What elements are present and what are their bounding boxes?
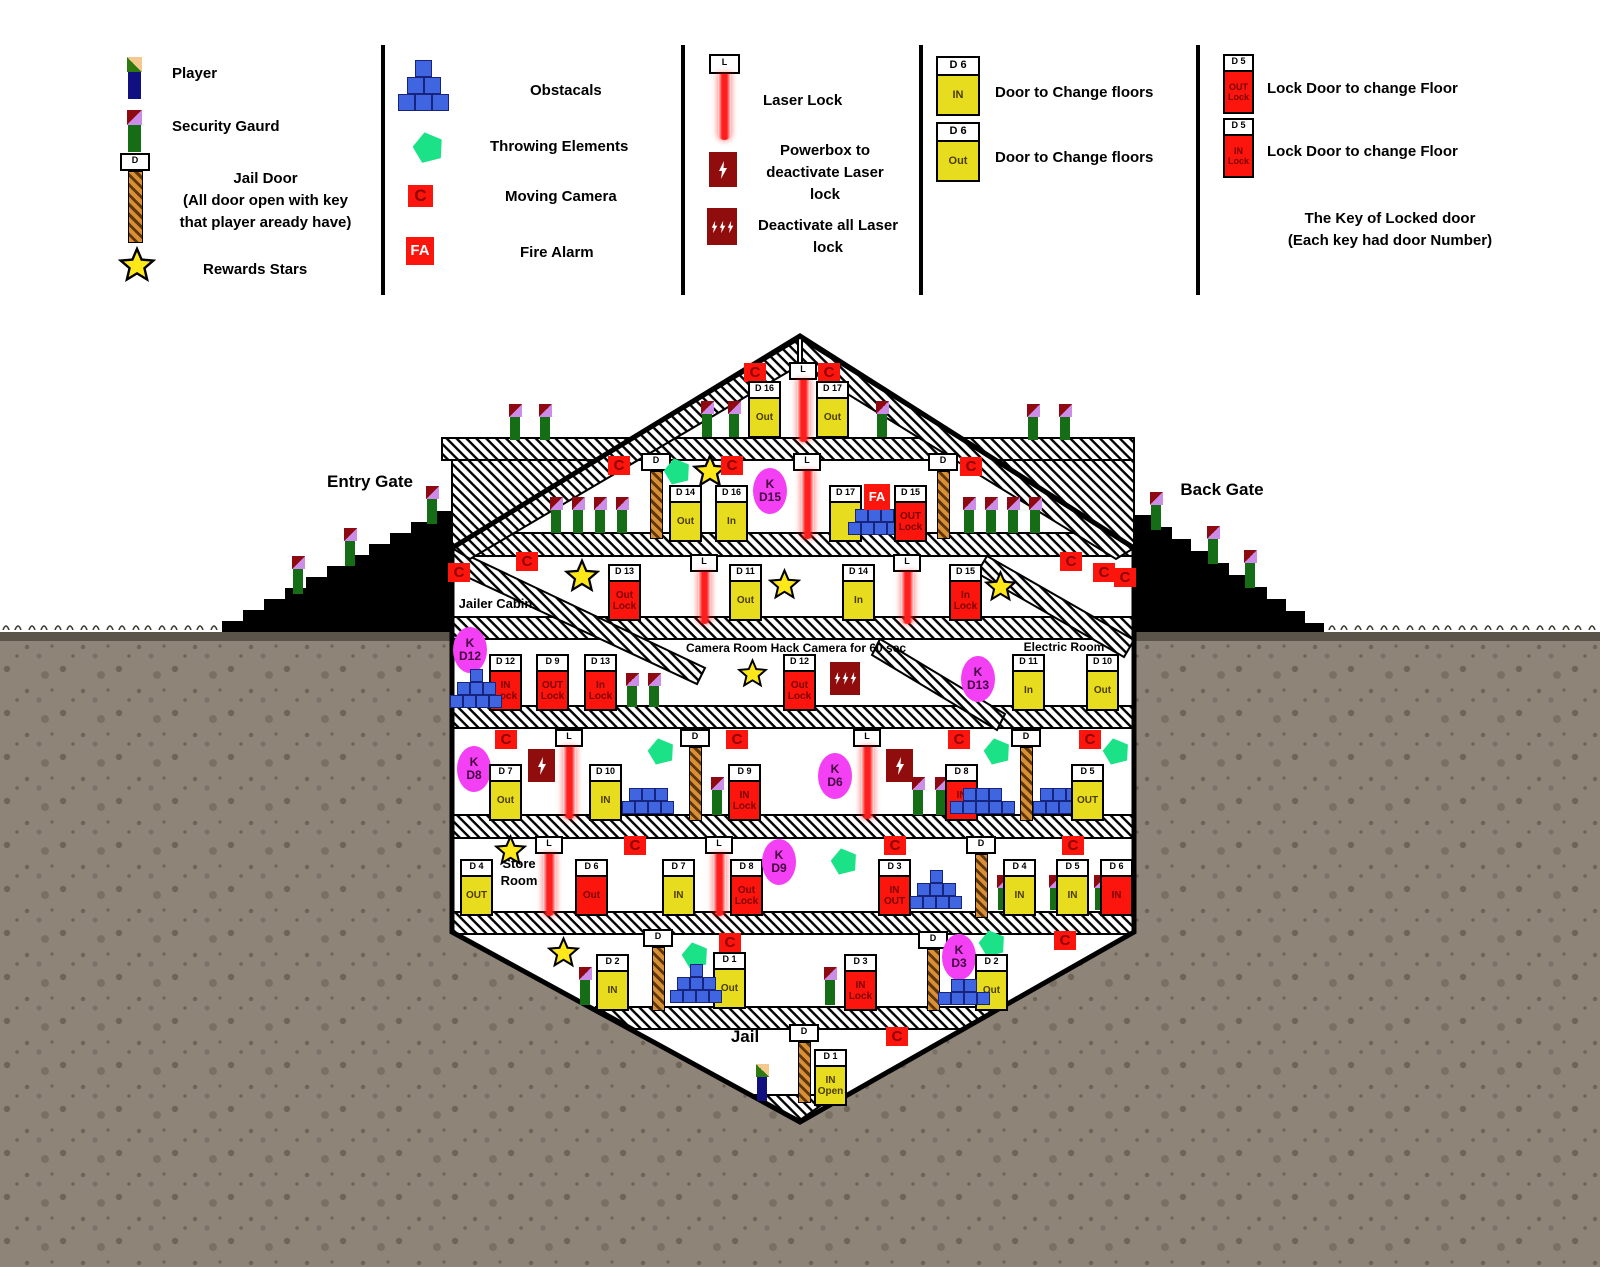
- camera-icon: C: [1093, 563, 1115, 582]
- reward-star-icon: [984, 570, 1017, 603]
- door-d4: D 4OUT: [460, 859, 493, 916]
- door-d16: D 16Out: [748, 381, 781, 438]
- security-guard: [578, 967, 592, 1005]
- lock-door-out-icon: D 5OUT Lock: [1223, 54, 1254, 114]
- security-guard: [823, 967, 837, 1005]
- door-d6: D 6IN: [1100, 859, 1133, 916]
- camera-icon: C: [516, 552, 538, 571]
- obstacle-blocks: [950, 788, 1015, 814]
- door-d3: D 3IN OUT: [878, 859, 911, 916]
- security-guard: [593, 497, 607, 533]
- camera-icon: C: [448, 563, 470, 582]
- security-guard: [962, 497, 976, 533]
- legend-fire-alarm-label: Fire Alarm: [520, 242, 594, 264]
- jail-door: D: [641, 453, 671, 539]
- camera-icon: C: [495, 730, 517, 749]
- jailer-cabin-label: Jailer Cabin: [448, 596, 543, 611]
- reward-star-icon: [768, 568, 801, 601]
- security-guard: [1026, 404, 1040, 440]
- door-d10: D 10Out: [1086, 654, 1119, 711]
- door-d10: D 10IN: [589, 764, 622, 821]
- laser-lock: L: [555, 729, 583, 819]
- security-guard: [911, 777, 925, 815]
- laser-lock: L: [690, 554, 718, 624]
- obstacle-blocks: [670, 964, 722, 1003]
- door-d2: D 2IN: [596, 954, 629, 1011]
- reward-star-icon: [737, 658, 768, 689]
- legend-divider: [1196, 45, 1200, 295]
- camera-icon: C: [1060, 552, 1082, 571]
- key-d12: KD12: [453, 627, 487, 673]
- electric-room-label: Electric Room: [1008, 640, 1120, 654]
- obstacle-blocks: [450, 669, 502, 708]
- moving-camera-icon: C: [408, 185, 433, 207]
- camera-icon: C: [726, 730, 748, 749]
- security-guard: [1058, 404, 1072, 440]
- key-d8: KD8: [457, 746, 491, 792]
- back-staircase: [1134, 515, 1324, 632]
- door-d7: D 7Out: [489, 764, 522, 821]
- legend-door-change-label: Door to Change floors: [995, 82, 1153, 104]
- door-change-floor-in-icon: D 6IN: [936, 56, 980, 116]
- legend-stars-label: Rewards Stars: [203, 259, 307, 281]
- fire-alarm-icon: FA: [864, 484, 890, 510]
- door-d9: D 9IN Lock: [728, 764, 761, 821]
- key-d13: KD13: [961, 656, 995, 702]
- key-d15: KD15: [753, 468, 787, 514]
- obstacle-blocks-icon: [398, 60, 449, 111]
- security-guard: [875, 401, 889, 437]
- fire-alarm-icon: FA: [406, 237, 434, 265]
- camera-icon: C: [818, 363, 840, 382]
- door-d16: D 16In: [715, 485, 748, 542]
- laser-lock: L: [705, 836, 733, 916]
- door-d12: D 12Out Lock: [783, 654, 816, 711]
- reward-star-icon: [494, 834, 527, 867]
- security-guard: [425, 486, 439, 524]
- camera-icon: C: [1079, 730, 1101, 749]
- security-guard: [571, 497, 585, 533]
- jail-door: D: [680, 729, 710, 821]
- reward-star-icon: [564, 558, 600, 594]
- security-guard-icon: [127, 110, 142, 152]
- legend-obstacals-label: Obstacals: [530, 80, 602, 102]
- door-d13: D 13Out Lock: [608, 564, 641, 621]
- door-d11: D 11Out: [729, 564, 762, 621]
- camera-room-label: Camera Room Hack Camera for 60 sec: [682, 641, 910, 655]
- security-guard: [343, 528, 357, 566]
- legend-laser-label: Laser Lock: [763, 90, 842, 112]
- laser-lock-icon: L: [709, 54, 740, 140]
- camera-icon: C: [1114, 568, 1136, 587]
- camera-icon: C: [744, 363, 766, 382]
- security-guard: [615, 497, 629, 533]
- door-d9: D 9OUT Lock: [536, 654, 569, 711]
- entry-staircase: [222, 511, 452, 632]
- legend-jail-door-label: Jail Door (All door open with key that p…: [148, 168, 383, 234]
- door-d14: D 14Out: [669, 485, 702, 542]
- camera-icon: C: [948, 730, 970, 749]
- door-d17: D 17Out: [816, 381, 849, 438]
- security-guard: [647, 673, 661, 707]
- legend-powerbox-label: Powerbox to deactivate Laser lock: [745, 140, 905, 206]
- door-d7: D 7IN: [662, 859, 695, 916]
- door-d6: D 6Out: [575, 859, 608, 916]
- jail-door-icon: D: [120, 153, 150, 243]
- legend-lock-door-label: Lock Door to change Floor: [1267, 141, 1458, 163]
- security-guard: [1006, 497, 1020, 533]
- laser-lock: L: [793, 453, 821, 539]
- deactivate-all-laser-icon: [707, 208, 737, 245]
- jail-door: D: [643, 929, 673, 1011]
- camera-icon: C: [624, 836, 646, 855]
- entry-gate-label: Entry Gate: [310, 472, 430, 492]
- legend-key-note: The Key of Locked door (Each key had doo…: [1245, 208, 1535, 252]
- security-guard: [538, 404, 552, 440]
- laser-lock: L: [535, 836, 563, 916]
- legend-divider: [381, 45, 385, 295]
- camera-icon: C: [886, 1027, 908, 1046]
- lock-door-in-icon: D 5IN Lock: [1223, 118, 1254, 178]
- powerbox-icon: [709, 152, 737, 187]
- door-d3: D 3IN Lock: [844, 954, 877, 1011]
- deactivate-all-laser-icon: [830, 662, 860, 695]
- legend-divider: [681, 45, 685, 295]
- key-d3: KD3: [942, 934, 976, 980]
- camera-icon: C: [1062, 836, 1084, 855]
- security-guard: [1028, 497, 1042, 533]
- door-d1: D 1IN Open: [814, 1049, 847, 1106]
- camera-icon: C: [960, 457, 982, 476]
- door-d8: D 8Out Lock: [730, 859, 763, 916]
- security-guard: [700, 401, 714, 437]
- door-d4: D 4IN: [1003, 859, 1036, 916]
- camera-icon: C: [1054, 931, 1076, 950]
- legend-player-label: Player: [172, 63, 217, 85]
- door-d13: D 13In Lock: [584, 654, 617, 711]
- level-design-diagram: Player Security Gaurd D Jail Door (All d…: [0, 0, 1600, 1267]
- camera-icon: C: [884, 836, 906, 855]
- door-d5: D 5IN: [1056, 859, 1089, 916]
- camera-icon: C: [721, 456, 743, 475]
- door-d15: D 15OUT Lock: [894, 485, 927, 542]
- security-guard: [727, 401, 741, 437]
- laser-lock: L: [789, 362, 817, 442]
- legend-powerbox-all-label: Deactivate all Laser lock: [738, 215, 918, 259]
- laser-lock: L: [853, 729, 881, 819]
- jail-door: D: [966, 836, 996, 918]
- security-guard: [984, 497, 998, 533]
- camera-icon: C: [608, 456, 630, 475]
- legend-lock-door-label: Lock Door to change Floor: [1267, 78, 1458, 100]
- door-d11: D 11In: [1012, 654, 1045, 711]
- powerbox-icon: [528, 749, 555, 782]
- jail-label: Jail: [716, 1027, 774, 1047]
- player-marker: [755, 1064, 769, 1101]
- key-d9: KD9: [762, 839, 796, 885]
- powerbox-icon: [886, 749, 913, 782]
- security-guard: [1149, 492, 1163, 530]
- reward-star-icon: [118, 246, 156, 284]
- security-guard: [549, 497, 563, 533]
- player-icon: [127, 57, 142, 99]
- jail-door: D: [928, 453, 958, 539]
- security-guard: [625, 673, 639, 707]
- obstacle-blocks: [622, 788, 674, 814]
- key-d6: KD6: [818, 753, 852, 799]
- legend-divider: [919, 45, 923, 295]
- obstacle-blocks: [938, 979, 990, 1005]
- door-d15: D 15In Lock: [949, 564, 982, 621]
- security-guard: [710, 777, 724, 815]
- security-guard: [508, 404, 522, 440]
- laser-lock: L: [893, 554, 921, 624]
- legend-guard-label: Security Gaurd: [172, 116, 280, 138]
- door-d5: D 5OUT: [1071, 764, 1104, 821]
- security-guard: [291, 556, 305, 594]
- legend-door-change-label: Door to Change floors: [995, 147, 1153, 169]
- legend-throwing-label: Throwing Elements: [490, 136, 628, 158]
- door-d14: D 14In: [842, 564, 875, 621]
- camera-icon: C: [719, 933, 741, 952]
- reward-star-icon: [547, 936, 580, 969]
- back-gate-label: Back Gate: [1162, 480, 1282, 500]
- obstacle-blocks: [910, 870, 962, 909]
- legend-camera-label: Moving Camera: [505, 186, 617, 208]
- door-change-floor-out-icon: D 6Out: [936, 122, 980, 182]
- security-guard: [1206, 526, 1220, 564]
- security-guard: [1243, 550, 1257, 588]
